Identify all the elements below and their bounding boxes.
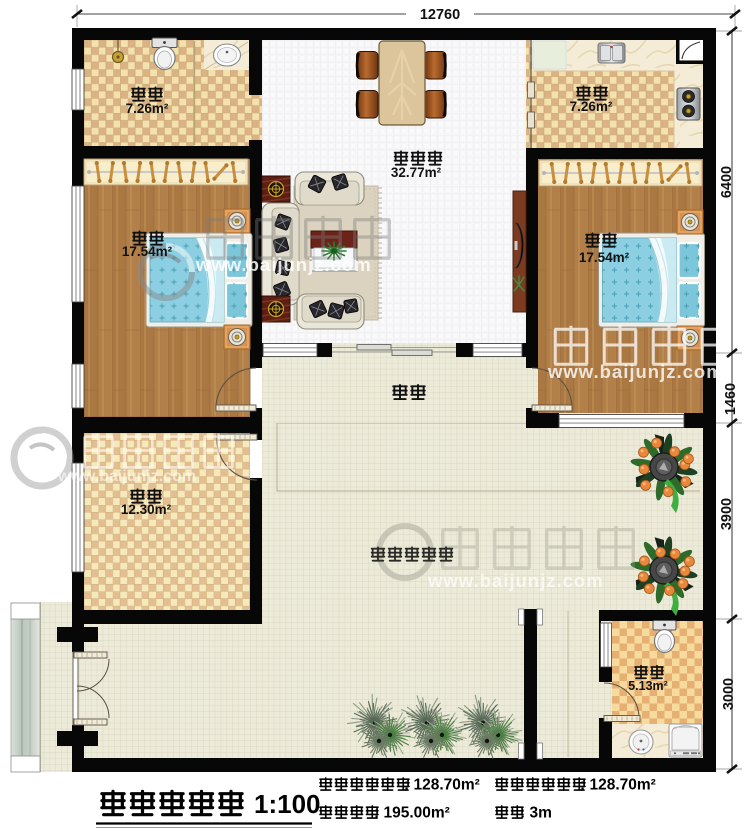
svg-text:www.baijunjz.com: www.baijunjz.com xyxy=(547,361,724,382)
svg-text:12.30m²: 12.30m² xyxy=(121,502,172,517)
svg-text:: 128.70m²: : 128.70m² xyxy=(580,777,656,794)
svg-text:17.54m²: 17.54m² xyxy=(579,250,630,265)
svg-text:5.13m²: 5.13m² xyxy=(628,679,668,693)
svg-text:www.baijunjz.com: www.baijunjz.com xyxy=(427,570,604,591)
svg-text:32.77m²: 32.77m² xyxy=(391,165,442,180)
svg-text:www.baijunjz.com: www.baijunjz.com xyxy=(57,468,196,485)
svg-text:3900: 3900 xyxy=(719,498,735,530)
svg-text:7.26m²: 7.26m² xyxy=(570,99,613,114)
svg-text:12760: 12760 xyxy=(420,7,460,23)
svg-text:6400: 6400 xyxy=(719,166,735,198)
svg-text:1460: 1460 xyxy=(723,383,739,415)
svg-text:: 3m: : 3m xyxy=(520,805,552,822)
svg-text:7.26m²: 7.26m² xyxy=(126,101,169,116)
svg-text:1:100: 1:100 xyxy=(254,789,321,819)
svg-text:www.baijunjz.com: www.baijunjz.com xyxy=(195,254,372,275)
svg-text:17.54m²: 17.54m² xyxy=(122,244,173,259)
svg-text:3000: 3000 xyxy=(721,678,737,710)
svg-text:: 195.00m²: : 195.00m² xyxy=(374,805,450,822)
svg-text:: 128.70m²: : 128.70m² xyxy=(404,777,480,794)
